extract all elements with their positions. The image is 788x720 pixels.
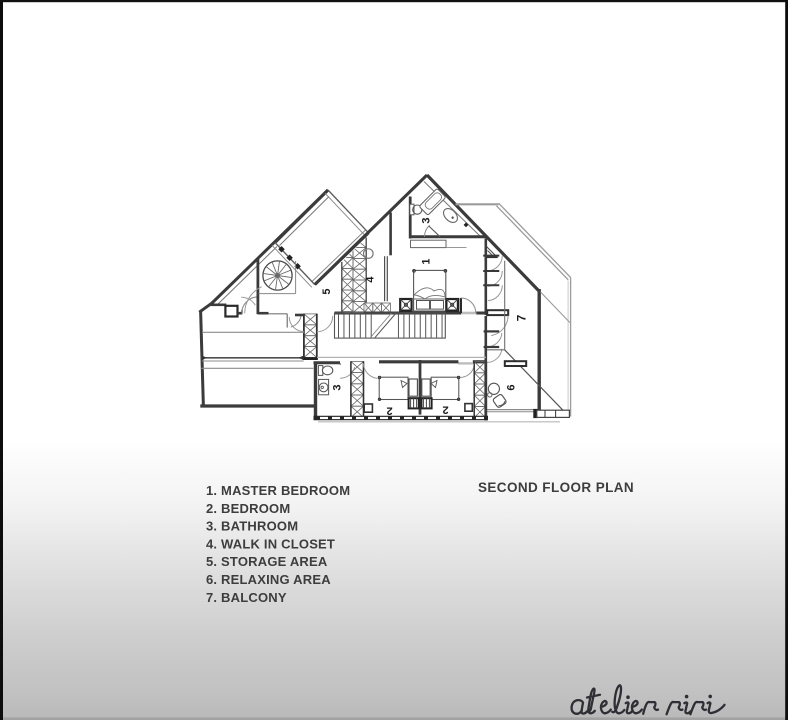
svg-text:1: 1 — [421, 258, 433, 264]
svg-text:2: 2 — [442, 404, 448, 416]
svg-text:3: 3 — [332, 384, 344, 390]
svg-text:7. BALCONY: 7. BALCONY — [206, 590, 287, 605]
svg-text:3. BATHROOM: 3. BATHROOM — [206, 519, 298, 534]
svg-text:6: 6 — [506, 384, 518, 390]
svg-text:3: 3 — [421, 217, 433, 223]
svg-text:5: 5 — [321, 288, 333, 294]
svg-text:2. BEDROOM: 2. BEDROOM — [206, 501, 290, 516]
svg-text:4. WALK IN CLOSET: 4. WALK IN CLOSET — [206, 536, 335, 551]
svg-text:6. RELAXING AREA: 6. RELAXING AREA — [206, 572, 331, 587]
svg-text:7: 7 — [515, 314, 529, 321]
svg-text:1. MASTER BEDROOM: 1. MASTER BEDROOM — [206, 483, 350, 498]
svg-text:2: 2 — [386, 405, 392, 417]
svg-text:SECOND FLOOR PLAN: SECOND FLOOR PLAN — [478, 480, 634, 495]
svg-text:5. STORAGE AREA: 5. STORAGE AREA — [206, 554, 328, 569]
svg-text:4: 4 — [365, 276, 377, 283]
